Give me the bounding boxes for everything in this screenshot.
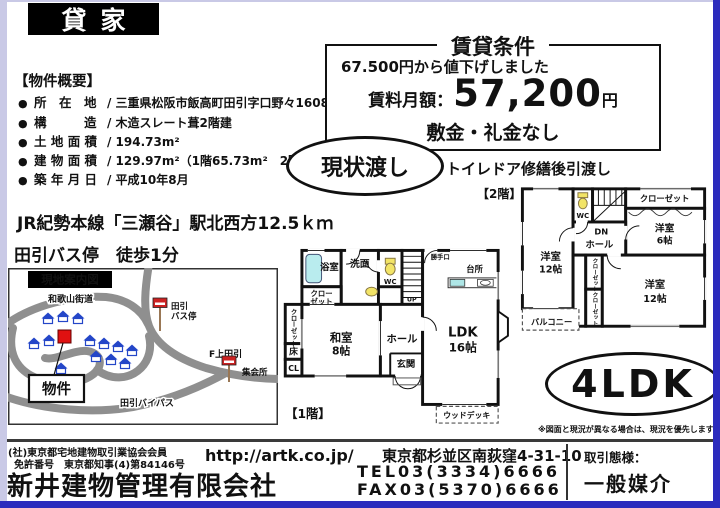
room-label-toko: 床 <box>289 345 298 357</box>
room-label-room12b: 洋室 <box>645 278 665 291</box>
overview-value: / 194.73m² <box>107 135 180 149</box>
overview-value: / 三重県松阪市飯高町田引字口野々1608番3 <box>107 94 349 111</box>
room-label-hall: ホール <box>387 334 419 346</box>
overview-row: ● 土 地 面 積 / 194.73m² <box>18 131 180 150</box>
footer-divider <box>0 439 720 442</box>
bullet-icon: ● <box>18 136 34 149</box>
bay-window <box>498 311 508 342</box>
room-label-ldk: LDK <box>448 326 478 341</box>
toilet-icon <box>385 258 395 275</box>
stairs-dn-label: DN <box>594 227 608 237</box>
bullet-icon: ● <box>18 155 34 168</box>
floorplan-1f: 浴室 洗面 WC クロー ゼット クローゼット 床 CL 和室 8帖 ホール 玄… <box>283 221 520 427</box>
room-label-ldk-size: 16帖 <box>449 340 477 354</box>
room-label-closet-top: クローゼット <box>640 194 690 204</box>
footer-vertical-divider <box>566 444 568 500</box>
flyer-page: 貸家 【物件概要】 ● 所 在 地 / 三重県松阪市飯高町田引字口野々1608番… <box>0 0 720 508</box>
meeting-hall-label: 集会所 <box>241 367 268 378</box>
disclaimer: ※図面と現況が異なる場合は、現況を優先します <box>538 424 714 435</box>
page-border-top <box>0 0 720 2</box>
site-url: http://artk.co.jp/ <box>205 446 354 465</box>
kitchen-counter-icon <box>448 278 497 288</box>
rent-amount: 57,200 <box>453 72 602 115</box>
overview-row: ● 構 造 / 木造スレート葺2階建 <box>18 112 232 131</box>
floor1-label: 【1階】 <box>285 406 330 421</box>
page-border-left <box>0 0 7 508</box>
sink-icon <box>366 287 378 296</box>
room-label-closet: ゼット <box>311 297 333 306</box>
as-is-stamp: 現状渡し <box>286 136 444 196</box>
handover-note: トイレドア修繕後引渡し <box>446 158 611 179</box>
bullet-icon: ● <box>18 117 34 130</box>
overview-label: 土 地 面 積 <box>34 131 101 150</box>
layout-badge: 4LDK <box>545 352 720 416</box>
page-title: 貸家 <box>47 1 139 37</box>
room-label-closet-mid2: クローゼット <box>591 291 598 326</box>
room-label-room6-size: 6帖 <box>657 234 673 246</box>
room-label-bath: 浴室 <box>320 261 339 273</box>
rental-conditions-box: 賃貸条件 67.500円から値下げしました 賃料月額：57,200円 敷金・礼金… <box>325 44 661 151</box>
room-label-wash: 洗面 <box>350 257 370 270</box>
bullet-icon: ● <box>18 174 34 187</box>
rent-unit: 円 <box>602 91 618 110</box>
rent-line: 賃料月額：57,200円 <box>327 72 659 115</box>
overview-label: 所 在 地 <box>34 92 101 111</box>
bus-access: 田引バス停 徒歩1分 <box>14 241 179 266</box>
overview-heading: 【物件概要】 <box>14 70 101 91</box>
overview-value: / 平成10年8月 <box>107 171 189 188</box>
wood-deck-label: ウッドデッキ <box>443 410 490 420</box>
property-marker-icon <box>58 330 71 343</box>
property-callout-label: 物件 <box>42 380 71 398</box>
overview-value: / 木造スレート葺2階建 <box>107 114 232 131</box>
fax-number: FAX03(5370)6666 <box>357 480 562 499</box>
room-label-genkan: 玄関 <box>397 358 416 370</box>
room-label-wc: WC <box>384 278 397 286</box>
deal-type-label: 取引態様： <box>584 447 647 466</box>
room-label-room12b-size: 12帖 <box>643 292 667 305</box>
room-label-katteguchi: 勝手口 <box>431 252 450 261</box>
deal-type-value: 一般媒介 <box>584 468 672 497</box>
rent-label: 賃料月額： <box>368 91 453 111</box>
room-label-room12a-size: 12帖 <box>539 263 563 276</box>
bus-stop-label: バス停 <box>171 311 197 322</box>
floorplan-2f: WC DN ホール クローゼット 洋室 6帖 洋室 12帖 洋室 12帖 クロー… <box>513 183 715 335</box>
room-label-cl: CL <box>288 364 299 373</box>
overview-row: ● 所 在 地 / 三重県松阪市飯高町田引字口野々1608番3 <box>18 92 349 111</box>
road-label-wakayama: 和歌山街道 <box>47 293 93 305</box>
room-label-closet-vertical: クローゼット <box>290 308 298 347</box>
overview-label: 建 物 面 積 <box>34 150 101 169</box>
layout-badge-label: 4LDK <box>571 362 695 406</box>
room-label-closet-mid1: クローゼット <box>591 257 598 292</box>
room-label-washitsu: 和室 <box>329 331 353 345</box>
room-label-kitchen: 台所 <box>466 264 483 274</box>
tel-number: TEL03(3334)6666 <box>357 462 560 481</box>
overview-label: 築 年 月 日 <box>34 169 101 188</box>
room-label-room12a: 洋室 <box>540 250 560 263</box>
overview-row: ● 築 年 月 日 / 平成10年8月 <box>18 169 189 188</box>
road-label-bypass: 田引バイパス <box>120 397 174 409</box>
company-name: 新井建物管理有限会社 <box>7 466 277 503</box>
overview-label: 構 造 <box>34 112 101 131</box>
page-border-right <box>713 0 720 508</box>
room-label-room6: 洋室 <box>655 222 675 235</box>
stairs-up-label: UP <box>407 295 417 303</box>
map-title: 現地案内図 <box>41 273 99 287</box>
page-border-bottom <box>0 501 720 508</box>
as-is-label: 現状渡し <box>321 150 409 182</box>
room-label-hall: ホール <box>586 239 614 250</box>
room-label-washitsu-size: 8帖 <box>332 344 351 357</box>
page-title-box: 貸家 <box>28 3 159 35</box>
toilet-icon <box>578 193 588 209</box>
balcony-label: バルコニー <box>531 317 572 327</box>
site-map: 現地案内図 和歌山街道 物件 田引 バス停 F上田引 集会所 田引バイパス <box>8 268 278 425</box>
room-label-wc: WC <box>577 212 590 220</box>
bus-stop-label: 田引 <box>171 301 188 312</box>
bullet-icon: ● <box>18 97 34 110</box>
